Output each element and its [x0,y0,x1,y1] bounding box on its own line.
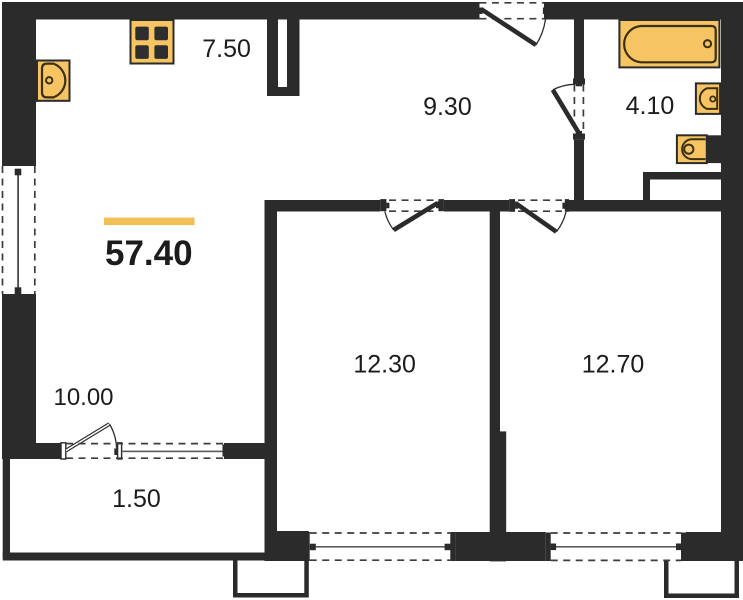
svg-text:1.50: 1.50 [112,485,161,513]
svg-text:10.00: 10.00 [53,384,113,411]
svg-text:7.50: 7.50 [202,35,251,63]
svg-text:9.30: 9.30 [423,93,472,121]
svg-text:12.70: 12.70 [582,350,645,378]
svg-text:4.10: 4.10 [626,92,675,120]
svg-text:12.30: 12.30 [353,350,416,378]
svg-text:57.40: 57.40 [105,234,193,273]
